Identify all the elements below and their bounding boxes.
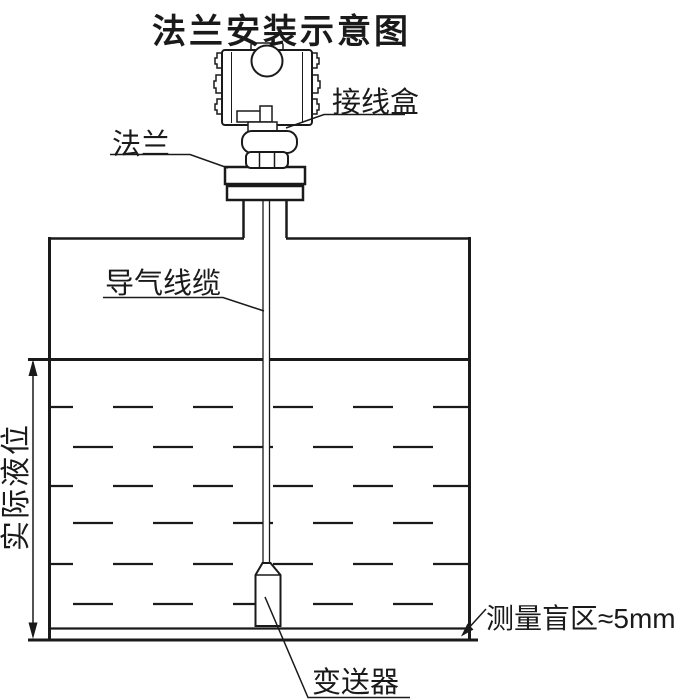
- transmitter-head: [214, 43, 320, 168]
- tank-outline: [28, 237, 478, 640]
- air-guide-cable: [263, 184, 270, 564]
- flange-installation-diagram: 法兰安装示意图 接线盒 法兰 导气线缆 实际液位 测量盲区≈5mm 变送器: [0, 0, 700, 700]
- blind-zone-arrow: [461, 609, 486, 637]
- diagram-title: 法兰安装示意图: [152, 4, 411, 53]
- label-blind-zone: 测量盲区≈5mm: [486, 597, 676, 637]
- label-air-guide-cable: 导气线缆: [105, 260, 221, 302]
- probe-transmitter: [256, 563, 281, 626]
- label-flange: 法兰: [112, 121, 170, 163]
- flange-plate: [225, 167, 305, 200]
- label-junction-box: 接线盒: [332, 79, 419, 121]
- hex-nut: [246, 152, 288, 168]
- label-actual-liquid-level: 实际液位: [0, 407, 34, 567]
- label-transmitter: 变送器: [312, 659, 399, 700]
